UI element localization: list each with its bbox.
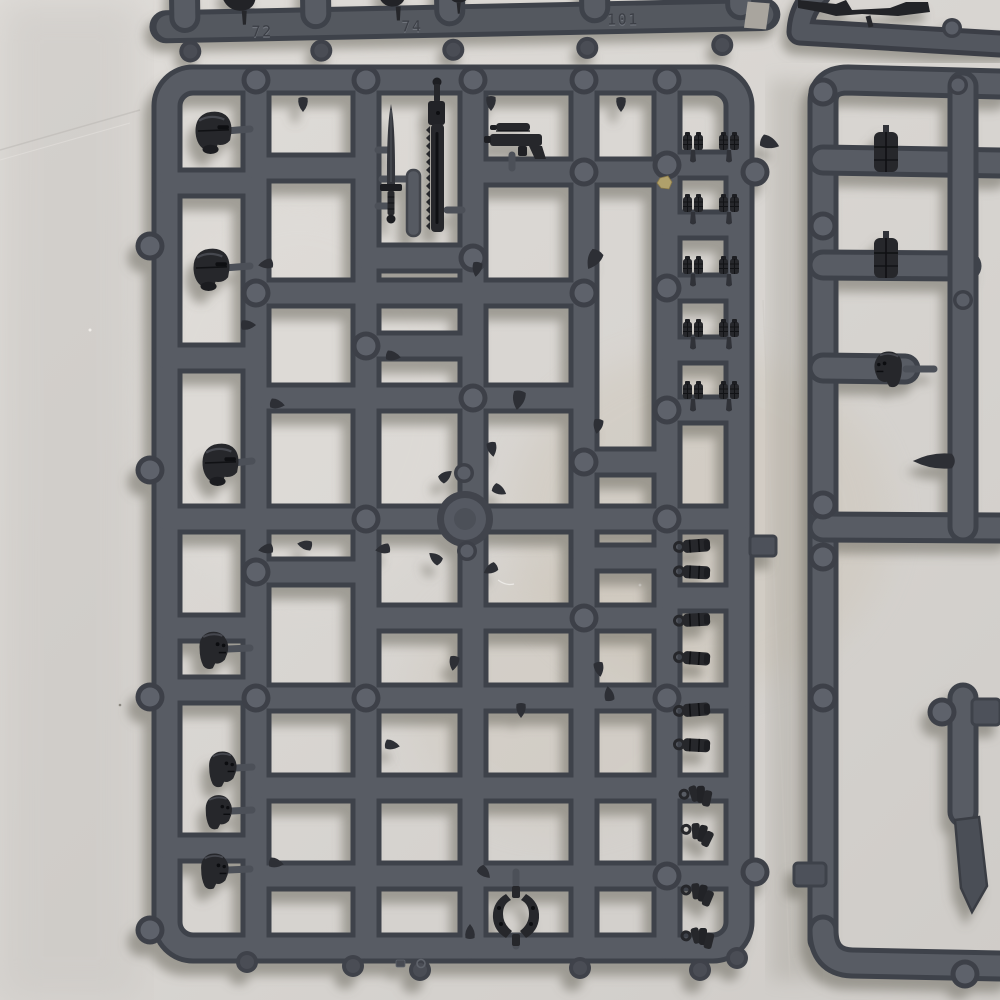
sprue-photo: 72 72 74 74 101 101: [0, 0, 1000, 1000]
